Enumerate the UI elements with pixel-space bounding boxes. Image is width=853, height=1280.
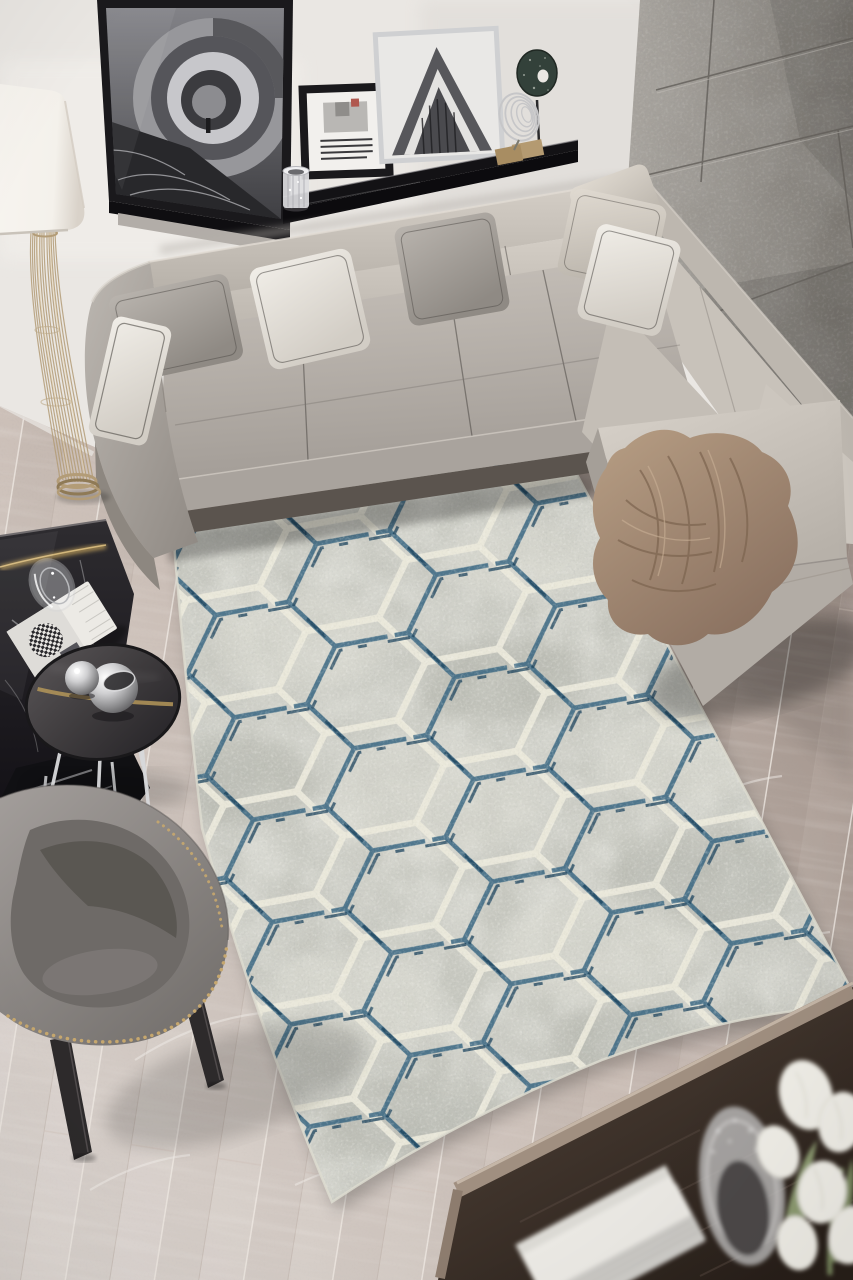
scene-canvas (0, 0, 853, 1280)
living-room-photo (0, 0, 853, 1280)
photo-vignette (0, 0, 853, 1280)
